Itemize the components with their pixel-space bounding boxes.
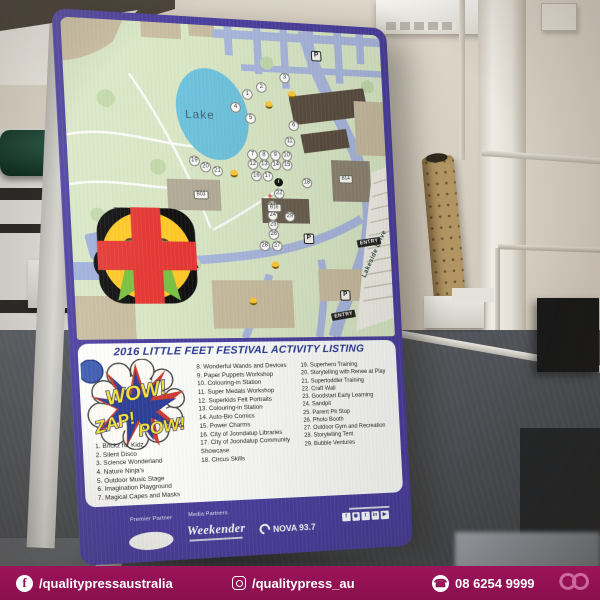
footer-bar: f /qualitypressaustralia /qualitypress_a… [0, 566, 600, 600]
black-equipment-corner [520, 428, 600, 536]
face-painter-marker-icon [249, 298, 257, 306]
map-marker-5: 5 [245, 113, 256, 124]
facebook-icon: f [16, 575, 33, 592]
building-label: B14 [339, 175, 353, 184]
map-marker-6: 6 [288, 120, 299, 131]
map-marker-13: 13 [259, 159, 270, 170]
activity-column-3: 19. Superhero Training20. Storytelling w… [300, 360, 400, 448]
activity-listing-panel: 2016 LITTLE FEET FESTIVAL ACTIVITY LISTI… [77, 340, 403, 508]
poster: Lake Lakeside Drive 12345678910111213141… [51, 8, 413, 566]
campus-map: Lake Lakeside Drive 12345678910111213141… [60, 16, 395, 339]
premier-partner-label: Premier Partner [130, 515, 173, 523]
phone-number: 08 6254 9999 [455, 576, 535, 591]
lake-label: Lake [185, 107, 215, 122]
activity-column-1: 1. Brickz for Kidz2. Silent Disco3. Scie… [95, 440, 203, 504]
linkedin-icon: in [371, 511, 379, 519]
first-aid-marker-icon: + [267, 192, 272, 201]
map-marker-12: 12 [247, 159, 258, 170]
map-marker-3: 3 [279, 73, 290, 84]
map-marker-28: 28 [259, 241, 270, 252]
map-marker-1: 1 [242, 89, 253, 100]
premier-partner-logo [128, 530, 174, 552]
map-marker-4: 4 [230, 102, 241, 113]
phone-icon: ☎ [432, 575, 449, 592]
facebook-group: f /qualitypressaustralia [16, 566, 173, 600]
parking-marker-icon: P [340, 290, 351, 300]
instagram-icon [232, 576, 246, 590]
air-conditioner [376, 0, 488, 34]
nova-logo: NOVA 93.7 [259, 521, 316, 535]
media-partners-label: Media Partners [188, 510, 228, 518]
face-painter-marker-icon [288, 91, 296, 99]
map-marker-18: 18 [302, 178, 313, 189]
map-marker-19: 19 [189, 155, 200, 166]
nova-label: NOVA 93.7 [273, 522, 316, 534]
youtube-icon: ▶ [381, 511, 389, 519]
wall-pipe-drop [495, 248, 500, 340]
festival-sign-board: Lake Lakeside Drive 12345678910111213141… [51, 8, 413, 566]
electrical-box [541, 3, 577, 31]
black-equipment [537, 298, 599, 372]
face-painter-marker-icon [271, 261, 279, 269]
face-painter-marker-icon [265, 101, 273, 109]
qualitypress-logo [557, 567, 590, 592]
parking-marker-icon: P [304, 233, 315, 244]
activity-column-2: 8. Wonderful Wands and Devices9. Paper P… [196, 362, 311, 465]
social-icons-block: f◉tin▶ [342, 505, 399, 521]
map-marker-15: 15 [282, 160, 293, 171]
map-marker-20: 20 [200, 162, 211, 173]
map-marker-2: 2 [256, 82, 267, 93]
map-marker-17: 17 [262, 171, 273, 182]
social-caption-line [349, 506, 389, 510]
map-marker-26: 26 [268, 229, 279, 240]
instagram-handle: /qualitypress_au [252, 576, 355, 591]
phone-group: ☎ 08 6254 9999 [432, 566, 535, 600]
map-marker-21: 21 [212, 166, 223, 177]
map-marker-16: 16 [251, 171, 262, 182]
social-icons-row: f◉tin▶ [342, 510, 399, 521]
building-label: B03 [194, 190, 209, 199]
map-marker-29: 29 [284, 211, 295, 222]
instagram-icon: ◉ [352, 512, 360, 520]
map-legend: ToiletsACROD toiletsiEvent informationPP… [89, 206, 205, 304]
photo-scene: Lake Lakeside Drive 12345678910111213141… [0, 0, 600, 600]
map-marker-14: 14 [270, 160, 281, 171]
ac-vents [386, 22, 456, 30]
tube-cap [425, 152, 448, 163]
instagram-group: /qualitypress_au [232, 566, 355, 600]
facebook-handle: /qualitypressaustralia [39, 576, 173, 591]
cardboard-tube [422, 155, 467, 307]
face-painter-marker-icon [230, 170, 238, 178]
white-box-small [452, 288, 494, 302]
facebook-icon: f [342, 513, 350, 521]
wall-pipe-vertical [459, 0, 465, 160]
nova-swoosh-icon [257, 522, 272, 537]
legend-row: First Aid [93, 293, 204, 301]
activity-columns: 1. Brickz for Kidz2. Silent Disco3. Scie… [77, 340, 403, 508]
twitter-icon: t [361, 512, 369, 520]
map-marker-11: 11 [284, 136, 295, 147]
map-marker-22: 22 [274, 188, 285, 199]
info-marker-icon: i [274, 178, 283, 187]
building-label: B16 [267, 203, 282, 212]
parking-marker-icon: P [311, 51, 322, 62]
map-marker-27: 27 [272, 241, 283, 252]
